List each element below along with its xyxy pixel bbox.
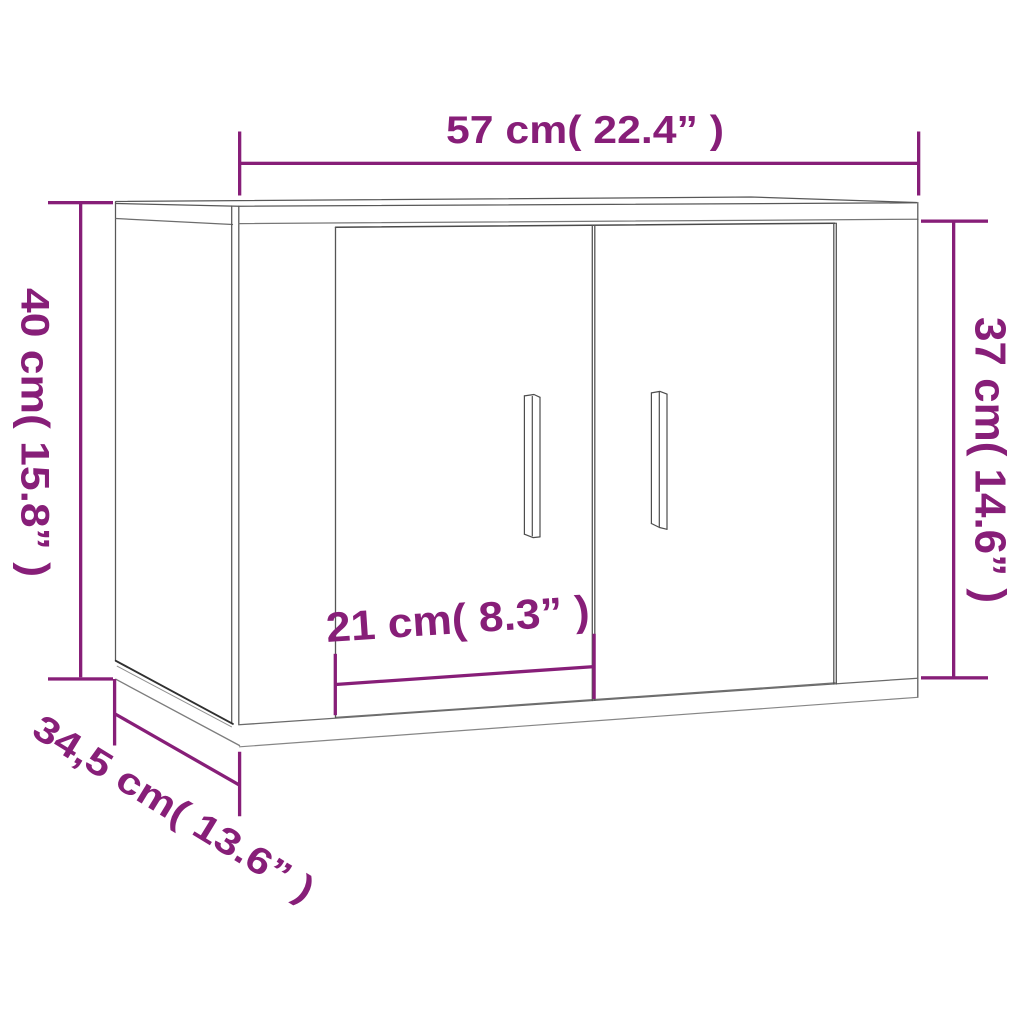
svg-text:57 cm( 22.4” ): 57 cm( 22.4” ): [446, 109, 724, 152]
svg-text:37 cm( 14.6” ): 37 cm( 14.6” ): [966, 317, 1014, 603]
svg-text:40 cm( 15.8” ): 40 cm( 15.8” ): [13, 288, 57, 577]
